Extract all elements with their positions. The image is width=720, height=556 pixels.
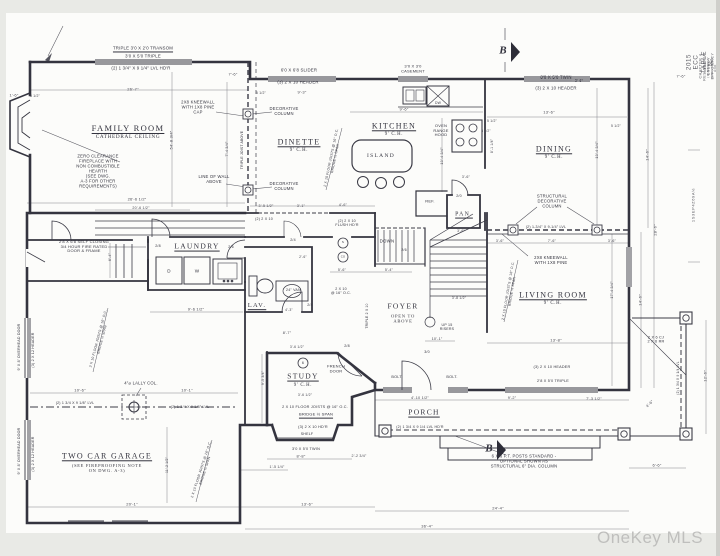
note-label: BRIDGE ½ SPAN — [299, 413, 333, 418]
sub-label: 9' C.H. — [290, 148, 308, 154]
dim-label: 26'-7" — [127, 88, 138, 93]
dim-label: 13'-4 3/4" — [595, 141, 599, 158]
dim-label: 24'-4" — [492, 507, 503, 512]
dim-label: 7'-3 1/2" — [586, 397, 602, 401]
door-size-tag: 2/0 — [456, 194, 462, 198]
note-label: (3) 2 X 12 HEADER — [31, 332, 35, 367]
note-label: (2) 2 X 10 FLUSH HD'R — [335, 219, 358, 227]
dim-label: 14'-6" — [639, 294, 644, 305]
dim-label: 9'-3" — [298, 91, 307, 96]
dim-label: 4'-6" — [339, 203, 347, 207]
dim-label: 5 1/2" — [30, 94, 40, 98]
door-size-tag: 3/0 — [424, 350, 430, 354]
dim-label: 54'-8 3/4" — [170, 131, 175, 150]
dim-label: 3'-6 1/2" — [298, 393, 312, 397]
watermark: OneKey MLS — [597, 528, 703, 548]
room-label-pantry: PAN. — [455, 212, 473, 219]
note-label: (2) 2 X 10 — [255, 217, 273, 221]
room-label-study: STUDY — [287, 373, 319, 382]
dim-label: 10'-6" — [74, 389, 85, 394]
room-label-kitchen: KITCHEN — [372, 121, 416, 130]
dim-label: 5 1/2" — [256, 91, 266, 95]
dim-label: 2'-6" — [299, 255, 307, 259]
note-label: (2) 1 3/4 X 9 1/8" LVL — [56, 401, 95, 405]
dim-label: 8'-1 1/4" — [490, 139, 494, 153]
french-door-label: FRENCH DOOR — [327, 364, 345, 373]
note-label: DECORATIVE COLUMN — [270, 182, 299, 192]
section-marker-b-top: B — [499, 45, 507, 58]
dim-label: 3'-6" — [462, 175, 470, 179]
note-label: TRIPLE JOIST ABOVE — [240, 131, 244, 169]
dim-label: 5 1/2" — [611, 124, 621, 128]
room-label-foyer: FOYER — [387, 303, 418, 312]
dim-label: 2'-2 3/4" — [352, 454, 367, 458]
note-label: (2) 1-3/4" X 9-1/4" LVL — [526, 225, 566, 229]
note-label: 2'8 X 6'8 SELF CLOSING 3/4 HOUR FIRE RAT… — [59, 240, 109, 254]
note-label: 3'0 X 5'0 TWIN — [292, 447, 320, 451]
island-label: ISLAND — [367, 153, 395, 159]
dim-label: 13'-4 3/4" — [440, 147, 444, 164]
note-label: TRIPLE 2 X 10 — [365, 303, 369, 328]
dim-label: 8'-7" — [283, 331, 292, 335]
note-label: 2 X 10 FLOOR JOISTS @ 16" O.C. BRIDGE ½ … — [190, 440, 216, 499]
dim-label: 5'-4" — [385, 268, 393, 272]
overhead-door-label: 9' X 8' OVERHEAD DOOR — [17, 324, 21, 371]
dim-label: 6'-6" — [653, 464, 662, 469]
dim-label: 26'-6 1/2" — [128, 198, 147, 203]
dim-label: 3'-6" — [496, 239, 504, 243]
note-label: 6 X 6 P.T. POSTS STANDARD - OPTIONAL SHO… — [491, 455, 558, 470]
co-detector-label: CO — [341, 255, 346, 258]
dim-label: 3'-1" — [297, 204, 305, 208]
dim-label: 3'-6" — [608, 239, 616, 243]
scan-edge-strip — [716, 0, 720, 556]
note-label: TRIPLE 3'0 X 2'0 TRANSOM — [113, 45, 173, 50]
dim-label: 9'-6 1/2" — [188, 308, 204, 313]
note-label: STRUCTURAL DECORATIVE COLUMN — [537, 195, 567, 210]
note-label: DECORATIVE COLUMN — [270, 107, 299, 117]
room-label-laundry: LAUNDRY — [174, 243, 219, 252]
dim-label: 8'-8" — [297, 455, 306, 460]
keynote-6: 6 — [302, 361, 304, 365]
note-label: (2) 1 3/4" X 9 1/4" LVL HD'R — [111, 65, 170, 70]
note-label: (2) 1 3/4 X 9 1/4 LVL HD'R — [396, 425, 443, 429]
note-label: 2 X 10 FLOOR JOISTS @ 16" O.C. BRIDGE ½ … — [323, 128, 343, 188]
dim-label: 9'-2" — [508, 396, 517, 400]
dim-label: 5 1/2" — [487, 119, 497, 123]
dim-label: 1'-5 1/4" — [270, 465, 285, 469]
dim-label: 14'-6" — [646, 149, 651, 160]
vanity-label: 24" VAN. — [286, 288, 302, 292]
dim-label: 3'-5 1/2" — [259, 204, 274, 208]
note-label: (3) 2 X 10 HD'R — [298, 425, 328, 429]
room-label-garage: TWO CAR GARAGE — [62, 451, 152, 460]
dim-label: 12'-6" — [704, 370, 709, 381]
dim-label: 3'-8 1/2" — [452, 296, 466, 300]
dim-label: 20'-1" — [126, 503, 137, 508]
room-label-living-room: LIVING ROOM — [519, 290, 587, 299]
note-label: (3) 2 X 10 HEADER — [277, 79, 318, 84]
room-label-lav: LAV. — [248, 302, 267, 310]
dim-label: 36'-4" — [421, 525, 432, 530]
dim-label: 28'-6" — [654, 224, 659, 235]
dim-label: 17'-4 3/4" — [610, 281, 614, 298]
note-label: 2 X 10 FLOOR JOISTS @ 16" O.C. BRIDGE ½ … — [88, 309, 111, 369]
sub-label: 9' C.H. — [545, 155, 563, 161]
dim-label: 9'-5 3/4" — [261, 371, 265, 385]
floor-plan-page: FAMILY ROOMCATHEDRAL CEILINGDINETTE9' C.… — [0, 0, 720, 556]
note-label: 2 X 10 FLOOR JOISTS @ 16" O.C. BRIDGE ½ … — [501, 261, 519, 321]
note-label: BOLT. — [391, 375, 402, 379]
note-label: (3) 2 X 10 HEADER — [535, 85, 576, 90]
fireplace-note: ZERO CLEARANCE FIREPLACE WITH NON COMBUS… — [76, 155, 120, 190]
door-size-tag: 2/4 — [290, 238, 296, 242]
note-label: 2X8 KNEEWALL WITH 1X8 PINE — [534, 256, 568, 266]
range-label: OVEN RANGE HOOD — [433, 124, 448, 138]
dim-label: 5'-6" — [338, 268, 346, 272]
dim-label: 3'-6" — [575, 79, 583, 83]
washer-label: W — [195, 268, 200, 273]
dim-label: 7'-6" — [548, 239, 556, 243]
note-label: 2'8 X 5'0 TRIPLE — [537, 379, 569, 383]
dim-label: 6'-4" — [108, 253, 112, 261]
smoke-detector-label: S — [342, 241, 344, 245]
dim-label: 13'-8" — [550, 339, 561, 344]
sub-label: 9' C.H. — [294, 383, 312, 389]
dishwasher-label: DW — [435, 101, 441, 105]
dim-label: 4'-10 1/2" — [411, 396, 429, 400]
room-label-dinette: DINETTE — [278, 137, 321, 146]
note-label: 3'0 X 5'0 TWIN — [540, 74, 571, 79]
sub-label: 9' C.H. — [385, 132, 403, 138]
sub-label: 9' C.H. — [544, 301, 562, 307]
dim-label: 3'-6 1/2" — [290, 345, 304, 349]
note-label: (3) 2 X 12 HEADER — [31, 436, 35, 471]
section-marker-b-bottom: B — [485, 443, 493, 456]
stairs-down-label: DOWN — [380, 238, 395, 243]
dim-label: 7'-6" — [677, 75, 686, 80]
note-label: 2 X 6 CJ 2 X 6 RR — [647, 336, 664, 345]
sub-label: OPEN TO ABOVE — [391, 314, 415, 325]
note-label: (2) 1 3/4 X 9 1/8" LVL — [171, 405, 210, 409]
note-label: BOLT. — [446, 375, 457, 379]
dim-label: 4'-6" — [645, 399, 654, 408]
door-size-tag: 2/8 — [344, 344, 350, 348]
fridge-label: REF. — [425, 200, 434, 205]
note-label: 2 X 10 FLOOR JOISTS @ 16" O.C. — [282, 405, 348, 409]
door-size-tag: 2/4 — [307, 303, 313, 307]
door-size-tag: 2/6 — [228, 245, 234, 249]
annotation-layer: FAMILY ROOMCATHEDRAL CEILINGDINETTE9' C.… — [0, 0, 720, 556]
room-label-porch: PORCH — [408, 409, 440, 418]
dim-label: 3'-6" — [457, 229, 465, 233]
overhead-door-label: 9' X 8' OVERHEAD DOOR — [17, 428, 21, 475]
dim-label: 3 1/2" — [481, 130, 490, 134]
door-size-tag: 2/8 — [155, 244, 161, 248]
sub-label: CATHEDRAL CEILING — [96, 134, 161, 140]
note-label: LINE OF WALL ABOVE — [198, 175, 229, 185]
note-label: 3'0 X 3'0 CASEMENT — [401, 64, 425, 73]
stairs-up-label: UP 15 RISERS — [440, 323, 455, 331]
dim-label: 7'-6" — [229, 73, 238, 78]
note-label: 3'0 X 5'0 TRIPLE — [125, 53, 161, 58]
margin-edge-text: 1S3EP4Z69A½ — [692, 188, 697, 222]
dim-label: 13'-6" — [543, 111, 554, 116]
dim-label: 4'-3" — [285, 308, 293, 312]
note-label: (3) 2 X 10 HEADER — [534, 365, 571, 369]
dim-label: 10'-1" — [181, 389, 192, 394]
note-label: 6'0 X 6'8 SLIDER — [281, 67, 317, 72]
door-size-tag: 2/6 — [401, 248, 407, 252]
dim-label: 20'-6 1/2" — [132, 206, 149, 210]
room-label-dining: DINING — [536, 144, 572, 153]
dim-label: 9'-6" — [400, 108, 409, 113]
note-label: SHELF — [301, 432, 314, 436]
dryer-label: D — [167, 268, 171, 273]
dim-label: 13'-6" — [301, 503, 312, 508]
note-label: 2X8 KNEEWALL WITH 1X8 PINE CAP — [181, 101, 215, 116]
dim-label: 7'-4 3/4" — [225, 142, 229, 157]
dim-label: 1'-6" — [10, 94, 19, 99]
room-label-family-room: FAMILY ROOM — [92, 123, 165, 133]
dim-label: 11'-2 1/2" — [165, 457, 169, 473]
note-label: 2 X 10 @ 16" O.C. — [331, 287, 351, 295]
sub-label: (SEE FIREPROOFING NOTE ON DWG. A-3) — [72, 463, 142, 473]
dim-label: 10'-1" — [432, 337, 443, 341]
note-label: (2) 1 3/4 X 9 1/4 LVL — [677, 361, 681, 394]
lally-column-label: 4"⌀ LALLY COL. — [124, 382, 157, 387]
